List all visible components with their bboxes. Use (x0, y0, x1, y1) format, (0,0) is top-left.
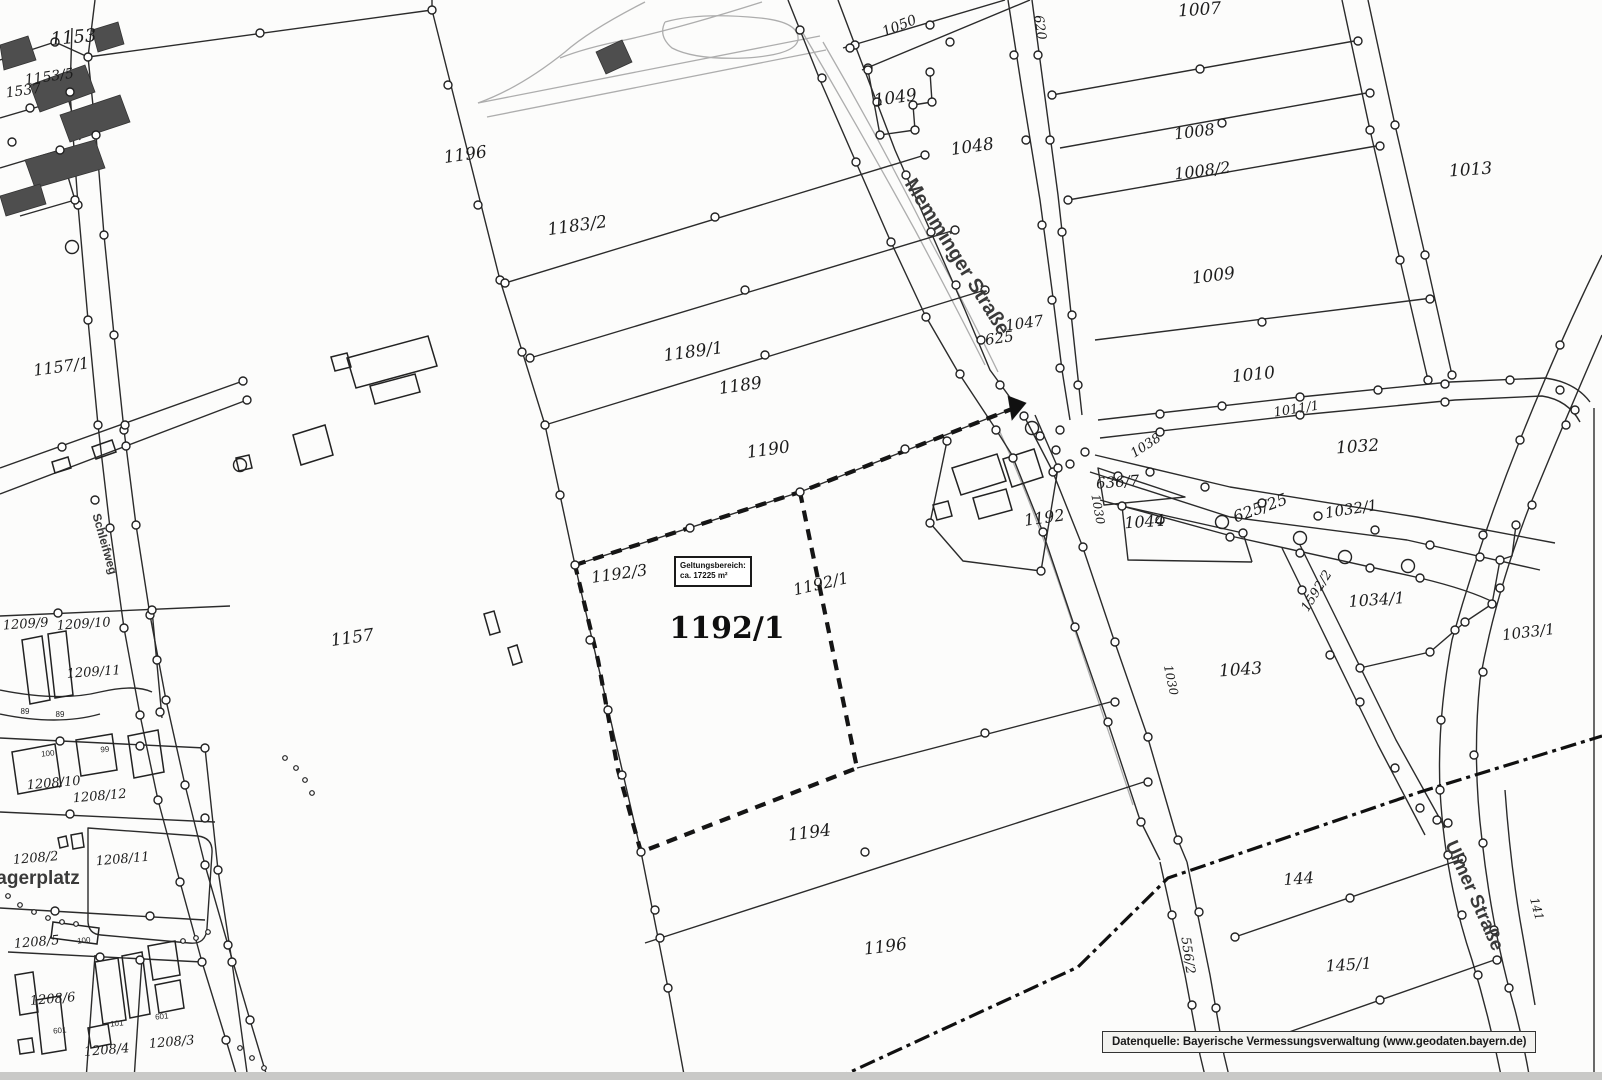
survey-point (911, 126, 919, 134)
survey-point (1371, 526, 1379, 534)
survey-point (1416, 574, 1424, 582)
parcel-boundary-line (575, 407, 1017, 565)
survey-point-large (1402, 560, 1415, 573)
survey-point (1296, 549, 1304, 557)
geltungsbereich-label-box: Geltungsbereich: ca. 17225 m² (674, 556, 752, 587)
survey-point (1506, 376, 1514, 384)
survey-point (1356, 664, 1364, 672)
parcel-boundary-line (1032, 0, 1082, 415)
parcel-label: 1209/9 (2, 615, 49, 633)
parcel-label: 1033/1 (1501, 620, 1556, 644)
survey-point (796, 488, 804, 496)
parcel-label: 1183/2 (546, 212, 608, 240)
survey-point (1562, 421, 1570, 429)
survey-point (136, 711, 144, 719)
building-number: 89 (56, 710, 65, 719)
survey-point (1396, 256, 1404, 264)
survey-point (122, 442, 130, 450)
survey-point (946, 38, 954, 46)
survey-point (1054, 464, 1062, 472)
survey-point (921, 151, 929, 159)
parcel-label: 1153 (50, 25, 97, 50)
survey-point (996, 381, 1004, 389)
parcel-label: 1208/12 (72, 787, 127, 807)
survey-point (1376, 142, 1384, 150)
survey-point (1071, 623, 1079, 631)
survey-point (201, 744, 209, 752)
survey-point (846, 44, 854, 52)
parcel-boundary-line (88, 828, 212, 943)
survey-point (146, 912, 154, 920)
parcel-label: 1038 (1128, 431, 1164, 462)
survey-point (711, 213, 719, 221)
parcel-boundary-line (1008, 0, 1070, 420)
survey-point (902, 171, 910, 179)
survey-point (1441, 398, 1449, 406)
survey-point (1034, 51, 1042, 59)
survey-point (1168, 911, 1176, 919)
survey-point (1046, 136, 1054, 144)
parcel-boundary-line (0, 908, 205, 920)
building-outline (973, 489, 1012, 519)
survey-point-small (32, 910, 37, 915)
building-number: 601 (155, 1011, 170, 1021)
parcel-label: 1208/2 (12, 849, 59, 868)
survey-point (1218, 119, 1226, 127)
building-number: 601 (53, 1025, 68, 1035)
survey-point (1111, 698, 1119, 706)
survey-point (71, 196, 79, 204)
parcel-label: 1048 (949, 134, 995, 160)
survey-point-large (234, 459, 247, 472)
survey-point (156, 708, 164, 716)
parcel-boundary-line (1505, 790, 1535, 1005)
survey-point (162, 696, 170, 704)
survey-point-large (66, 241, 79, 254)
survey-point (1079, 543, 1087, 551)
survey-point (66, 88, 74, 96)
parcel-label: 1010 (1231, 363, 1276, 387)
survey-point (256, 29, 264, 37)
building-outline (952, 454, 1006, 495)
street-label: Ulmer Straße (1440, 837, 1507, 954)
survey-point (1433, 816, 1441, 824)
survey-point (928, 98, 936, 106)
parcel-label: 1196 (442, 142, 488, 168)
parcel-label: 1050 (880, 12, 919, 40)
survey-point (1366, 564, 1374, 572)
survey-point (154, 796, 162, 804)
survey-point (94, 421, 102, 429)
survey-point (796, 26, 804, 34)
building-outline (58, 836, 68, 848)
survey-points-layer (6, 6, 1579, 1070)
survey-point (618, 771, 626, 779)
building-filled (0, 184, 46, 216)
cadastral-map: 11531153/5153711961183/21050100710496201… (0, 0, 1602, 1080)
survey-point-small (238, 1046, 243, 1051)
parcel-label: 1030 (1088, 493, 1107, 526)
parcel-label: 1034/1 (1348, 588, 1405, 611)
survey-point (1366, 126, 1374, 134)
survey-point (1022, 136, 1030, 144)
survey-point (1081, 448, 1089, 456)
survey-point (110, 331, 118, 339)
parcel-boundary-line (645, 780, 1150, 943)
parcel-boundary-line (134, 958, 142, 1080)
survey-point-small (46, 916, 51, 921)
parcel-label: 1196 (863, 934, 909, 959)
survey-point (120, 624, 128, 632)
building-outline (18, 1038, 34, 1054)
survey-point-small (262, 1066, 267, 1071)
survey-point (604, 706, 612, 714)
survey-point-small (206, 930, 211, 935)
survey-point (1056, 364, 1064, 372)
survey-point (586, 636, 594, 644)
survey-point (1426, 541, 1434, 549)
survey-point (91, 496, 99, 504)
survey-point (1188, 1001, 1196, 1009)
road-marking-line (487, 50, 826, 117)
survey-point (1144, 733, 1152, 741)
survey-point (1488, 600, 1496, 608)
survey-point (1218, 402, 1226, 410)
road-marking-line (800, 28, 985, 365)
survey-point (1037, 567, 1045, 575)
survey-point (96, 953, 104, 961)
survey-point (1056, 426, 1064, 434)
road-markings-layer (478, 2, 1133, 805)
parcel-label: 1189 (717, 373, 763, 399)
building-filled (92, 22, 124, 52)
survey-point (1010, 51, 1018, 59)
geltungsbereich-area: ca. 17225 m² (680, 571, 746, 581)
survey-point (1458, 911, 1466, 919)
survey-point (1174, 836, 1182, 844)
building-outline (236, 455, 252, 471)
survey-point (26, 104, 34, 112)
survey-point (686, 524, 694, 532)
parcel-label: 1008/2 (1173, 158, 1231, 184)
survey-point-small (294, 766, 299, 771)
parcel-boundary-line (843, 0, 1005, 48)
survey-point (901, 445, 909, 453)
parcel-label: 1209/10 (56, 615, 111, 634)
survey-point (214, 866, 222, 874)
survey-point (1137, 818, 1145, 826)
survey-point (1226, 533, 1234, 541)
parcel-label: 141 (1527, 896, 1546, 922)
parcel-label: 1208/3 (148, 1033, 195, 1052)
building-outline (370, 374, 420, 404)
survey-point (656, 934, 664, 942)
survey-point (181, 781, 189, 789)
survey-point (1314, 512, 1322, 520)
parcel-label: 1009 (1191, 263, 1237, 288)
survey-point (92, 131, 100, 139)
parcel-label: 1208/4 (83, 1041, 130, 1060)
survey-point (228, 958, 236, 966)
survey-point (243, 396, 251, 404)
building-outline (933, 501, 952, 520)
survey-point (926, 519, 934, 527)
parcel-boundary-line (1368, 0, 1452, 375)
survey-point (1195, 908, 1203, 916)
scan-edge (0, 1072, 1602, 1080)
survey-point (1479, 839, 1487, 847)
scope-boundary-dashed (641, 492, 857, 852)
survey-point (1512, 521, 1520, 529)
survey-point (1426, 295, 1434, 303)
survey-point (153, 656, 161, 664)
survey-point (1476, 553, 1484, 561)
survey-point-small (303, 778, 308, 783)
parcel-label: 1208/6 (29, 990, 76, 1009)
survey-point (239, 377, 247, 385)
labels-layer: 11531153/5153711961183/21050100710496201… (0, 0, 1556, 1060)
attribution-text: Datenquelle: Bayerische Vermessungsverwa… (1112, 1036, 1526, 1048)
survey-point (1064, 196, 1072, 204)
street-label: agerplatz (0, 868, 80, 889)
survey-point (1441, 380, 1449, 388)
survey-point (952, 281, 960, 289)
survey-point-small (18, 903, 23, 908)
parcel-label: 1189/1 (662, 338, 724, 366)
parcel-boundary-line (1342, 0, 1428, 380)
survey-point (526, 354, 534, 362)
building-outline (92, 440, 116, 459)
survey-point (1374, 386, 1382, 394)
survey-point (1479, 531, 1487, 539)
building-outline (128, 730, 164, 778)
survey-point (56, 146, 64, 154)
parcel-label: 1044 (1124, 511, 1166, 533)
survey-point (926, 68, 934, 76)
survey-point (501, 279, 509, 287)
parcel-label: 1032/1 (1324, 496, 1379, 522)
parcel-label: 1032 (1335, 436, 1380, 459)
parcel-boundary-line (0, 606, 230, 616)
survey-point-small (310, 791, 315, 796)
survey-point (1239, 529, 1247, 537)
survey-point (222, 1036, 230, 1044)
survey-point (1426, 648, 1434, 656)
building-filled (0, 36, 36, 70)
survey-point (818, 74, 826, 82)
survey-point (132, 521, 140, 529)
survey-point (1556, 341, 1564, 349)
survey-point (176, 878, 184, 886)
survey-point (861, 848, 869, 856)
survey-point (1424, 376, 1432, 384)
parcel-label: 1157/1 (32, 353, 90, 380)
survey-point-small (74, 922, 79, 927)
parcel-label: 1007 (1177, 0, 1222, 21)
survey-point (1326, 651, 1334, 659)
parcel-label-primary: 1192/1 (669, 611, 784, 646)
survey-point (474, 201, 482, 209)
survey-point (992, 426, 1000, 434)
attribution-box: Datenquelle: Bayerische Vermessungsverwa… (1102, 1031, 1536, 1053)
parcel-label: 1030 (1161, 664, 1181, 697)
scope-boundary-dashed (575, 407, 1017, 565)
road-marking-line (478, 36, 820, 103)
survey-point (741, 286, 749, 294)
parcel-label: 556/2 (1177, 936, 1197, 975)
survey-point (1391, 764, 1399, 772)
building-outline (52, 457, 71, 473)
survey-point (1444, 819, 1452, 827)
building-outline (155, 980, 184, 1013)
survey-point-large (1294, 532, 1307, 545)
survey-point (651, 906, 659, 914)
survey-point-small (181, 939, 186, 944)
survey-point (852, 158, 860, 166)
survey-point (8, 138, 16, 146)
buildings-layer (0, 22, 1043, 1054)
survey-point (1461, 618, 1469, 626)
survey-point (1020, 412, 1028, 420)
survey-point (981, 729, 989, 737)
survey-point (1505, 984, 1513, 992)
survey-point (84, 53, 92, 61)
building-number: 99 (100, 745, 110, 755)
survey-point-large (1216, 516, 1229, 529)
building-outline (76, 734, 117, 776)
parcel-label: 1190 (745, 437, 791, 463)
building-outline (508, 645, 522, 665)
survey-point (518, 348, 526, 356)
survey-point (1437, 716, 1445, 724)
parcel-boundary-line (1052, 40, 1360, 95)
survey-point (1346, 894, 1354, 902)
survey-point (887, 238, 895, 246)
scope-boundary-layer (575, 396, 1602, 1080)
survey-point (1528, 501, 1536, 509)
survey-point (1212, 1004, 1220, 1012)
survey-point (1391, 121, 1399, 129)
survey-point (1366, 89, 1374, 97)
survey-point (1376, 996, 1384, 1004)
parcel-boundary-line (530, 230, 955, 358)
parcel-label: 620 (1030, 14, 1048, 41)
survey-point (1144, 778, 1152, 786)
survey-point (58, 443, 66, 451)
parcel-label: 1008 (1173, 120, 1216, 144)
parcel-boundary-line (86, 955, 95, 1080)
building-outline (95, 958, 126, 1024)
survey-point (201, 814, 209, 822)
survey-point (864, 66, 872, 74)
parcel-label: 1192/3 (590, 560, 648, 587)
survey-point (148, 606, 156, 614)
survey-point-small (194, 936, 199, 941)
survey-point (246, 1016, 254, 1024)
survey-point (1009, 454, 1017, 462)
survey-point (1354, 37, 1362, 45)
survey-point (1516, 436, 1524, 444)
survey-point (1039, 528, 1047, 536)
building-number: 100 (77, 935, 92, 945)
building-outline (48, 631, 73, 698)
parcel-label: 1157 (329, 625, 375, 651)
survey-point (1479, 668, 1487, 676)
parcel-label: 1209/11 (66, 663, 121, 682)
street-label: Memminger Straße (900, 175, 1014, 339)
survey-point (1298, 586, 1306, 594)
survey-point (1451, 626, 1459, 634)
survey-point (1258, 318, 1266, 326)
survey-point (1036, 432, 1044, 440)
road-marking-line (560, 2, 762, 58)
survey-point (541, 421, 549, 429)
parcel-label: 1043 (1218, 659, 1263, 682)
street-label: Schleifweg (89, 512, 120, 576)
survey-point (1048, 296, 1056, 304)
survey-point (943, 437, 951, 445)
survey-point (571, 561, 579, 569)
parcel-boundary-line (0, 688, 152, 697)
survey-point (1074, 381, 1082, 389)
survey-point (1196, 65, 1204, 73)
survey-point (1118, 502, 1126, 510)
survey-point (1470, 751, 1478, 759)
parcel-boundary-line (205, 748, 248, 1080)
survey-point-small (60, 920, 65, 925)
parcel-boundary-line (70, 28, 238, 1080)
building-number: 100 (41, 748, 56, 758)
parcel-boundary-line (0, 714, 100, 720)
survey-point (1571, 406, 1579, 414)
road-marking-line (663, 16, 798, 59)
survey-point (922, 313, 930, 321)
survey-point (1068, 311, 1076, 319)
survey-point (1436, 786, 1444, 794)
survey-point-small (6, 894, 11, 899)
survey-point (224, 941, 232, 949)
building-number: 89 (21, 707, 30, 716)
parcel-boundary-line (1060, 92, 1372, 148)
survey-point (1104, 718, 1112, 726)
parcel-label: 144 (1283, 868, 1315, 889)
survey-point (54, 609, 62, 617)
parcel-label: 1208/5 (13, 933, 60, 952)
survey-point (1066, 460, 1074, 468)
survey-point (1474, 971, 1482, 979)
survey-point (201, 861, 209, 869)
survey-point (84, 316, 92, 324)
parcel-boundary-line (1476, 335, 1602, 1080)
survey-point (637, 848, 645, 856)
geltungsbereich-title: Geltungsbereich: (680, 561, 746, 571)
survey-point (444, 81, 452, 89)
parcel-label: 145/1 (1325, 953, 1372, 975)
survey-point (1496, 556, 1504, 564)
parcel-label: 1208/11 (95, 850, 150, 870)
parcel-boundary-line (0, 812, 215, 822)
survey-point (428, 6, 436, 14)
survey-point (1048, 91, 1056, 99)
parcel-boundary-line (1100, 396, 1580, 438)
survey-point (1146, 468, 1154, 476)
survey-point (1296, 393, 1304, 401)
parcel-label: 1194 (787, 820, 832, 845)
survey-point (1556, 386, 1564, 394)
survey-point (1156, 410, 1164, 418)
parcel-boundary-line (788, 0, 1160, 860)
survey-point (100, 231, 108, 239)
